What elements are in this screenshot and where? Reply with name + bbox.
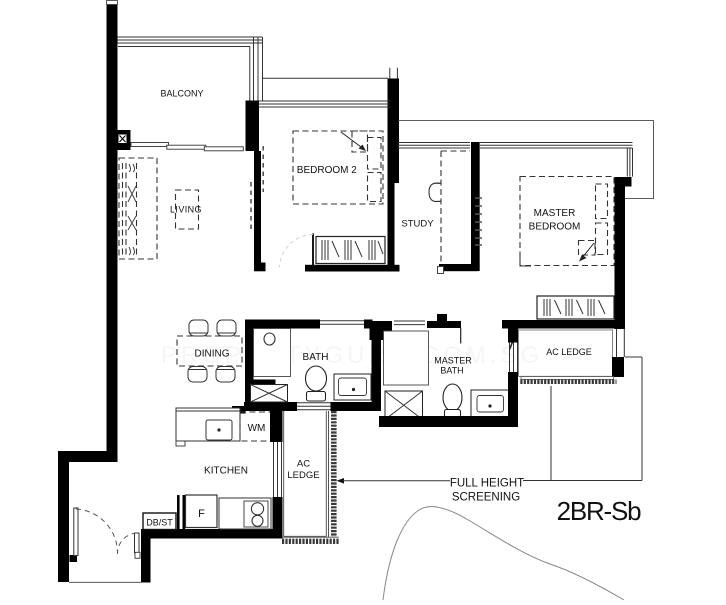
svg-text:2BR-Sb: 2BR-Sb	[557, 496, 642, 526]
svg-text:MASTER: MASTER	[434, 356, 472, 366]
svg-text:DB/ST: DB/ST	[146, 518, 173, 528]
svg-text:DINING: DINING	[195, 349, 230, 360]
svg-text:MASTER: MASTER	[534, 208, 576, 219]
svg-text:LIVING: LIVING	[170, 205, 202, 215]
svg-text:SCREENING: SCREENING	[452, 492, 520, 504]
svg-text:F: F	[198, 508, 205, 520]
svg-text:BEDROOM 2: BEDROOM 2	[297, 165, 357, 176]
svg-text:AC LEDGE: AC LEDGE	[546, 347, 592, 357]
svg-text:KITCHEN: KITCHEN	[204, 466, 248, 477]
svg-text:FULL HEIGHT: FULL HEIGHT	[450, 478, 524, 490]
svg-text:AC: AC	[297, 459, 310, 470]
svg-text:WM: WM	[248, 423, 266, 434]
svg-text:LEDGE: LEDGE	[287, 470, 319, 481]
svg-text:BATH: BATH	[303, 352, 329, 363]
svg-text:BALCONY: BALCONY	[160, 89, 203, 99]
svg-text:BATH: BATH	[440, 366, 463, 376]
svg-text:STUDY: STUDY	[401, 219, 434, 230]
svg-text:BEDROOM: BEDROOM	[529, 222, 581, 233]
